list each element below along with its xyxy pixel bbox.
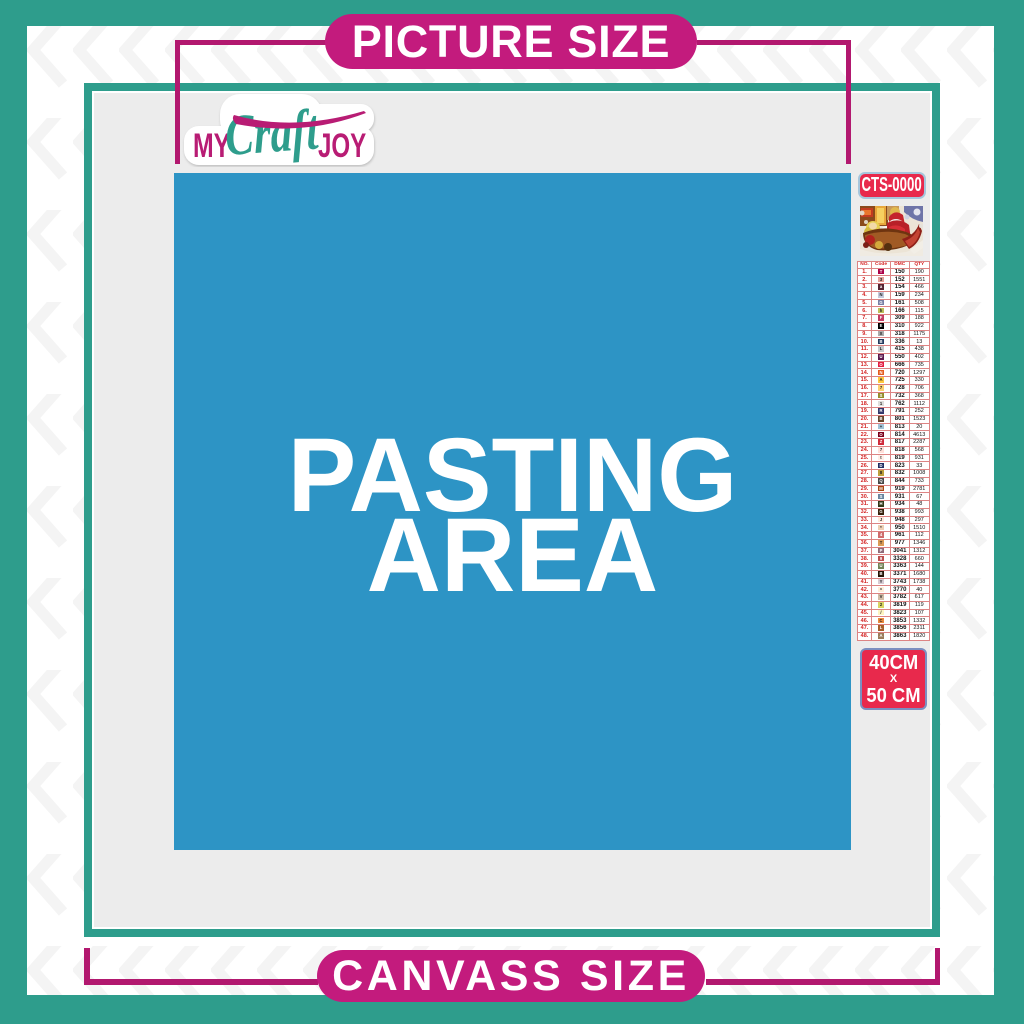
svg-text:JOY: JOY <box>318 127 367 165</box>
svg-text:Craft: Craft <box>224 98 321 167</box>
